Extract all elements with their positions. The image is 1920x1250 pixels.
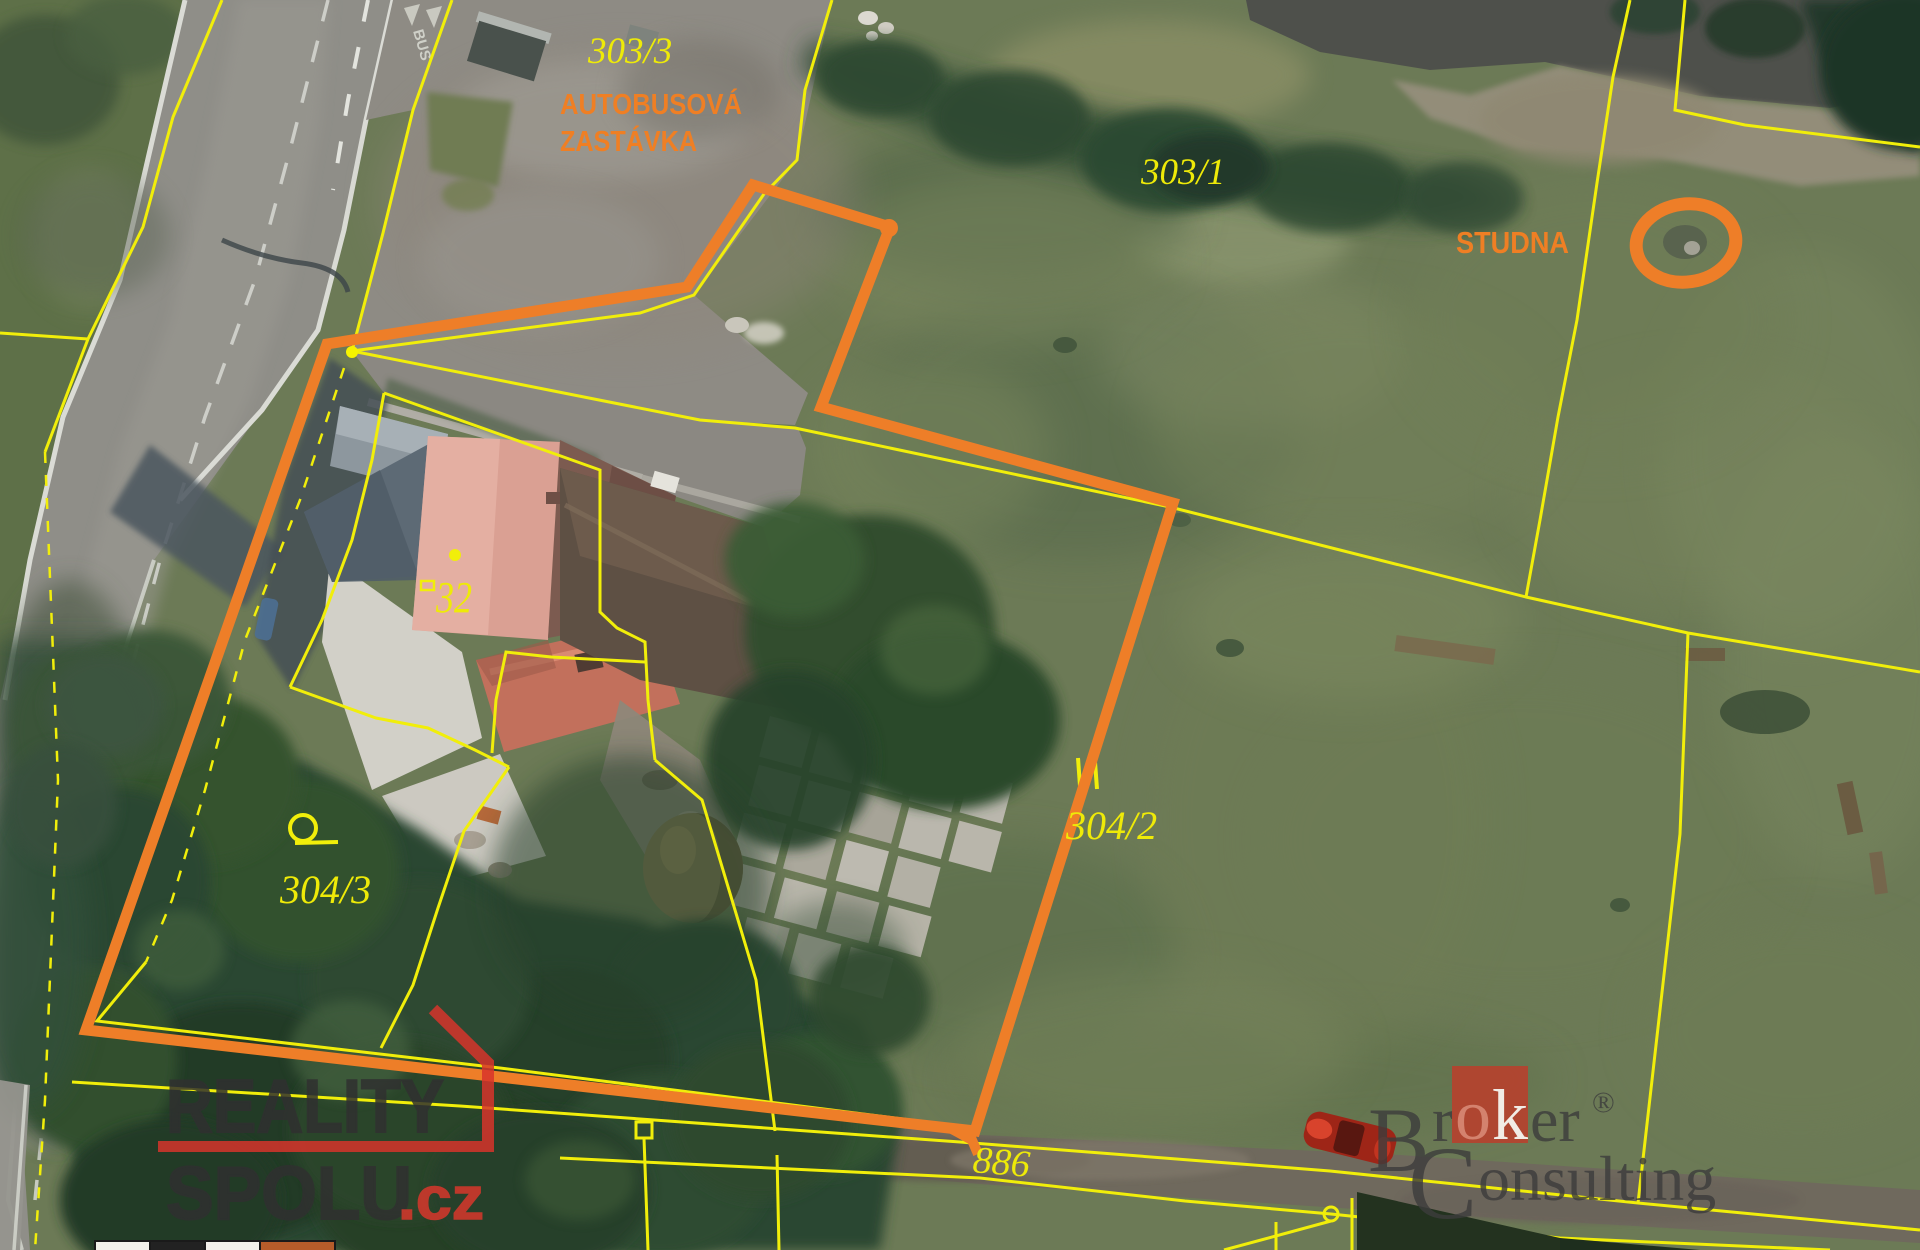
svg-text:886: 886: [971, 1139, 1031, 1186]
svg-text:SPOLU: SPOLU: [166, 1151, 412, 1235]
svg-text:304/3: 304/3: [279, 867, 371, 912]
svg-text:®: ®: [1592, 1086, 1615, 1119]
svg-text:304/2: 304/2: [1065, 803, 1157, 848]
svg-text:303/3: 303/3: [587, 31, 672, 72]
svg-text:k: k: [1492, 1075, 1528, 1155]
svg-text:32: 32: [435, 573, 472, 622]
svg-text:AUTOBUSOVÁ: AUTOBUSOVÁ: [560, 87, 742, 121]
svg-text:ZASTÁVKA: ZASTÁVKA: [560, 124, 697, 158]
svg-text:STUDNA: STUDNA: [1456, 225, 1569, 260]
svg-text:.cz: .cz: [398, 1165, 484, 1232]
svg-text:o: o: [1455, 1075, 1491, 1155]
svg-text:REALITY: REALITY: [166, 1064, 444, 1148]
svg-text:303/1: 303/1: [1140, 152, 1225, 193]
